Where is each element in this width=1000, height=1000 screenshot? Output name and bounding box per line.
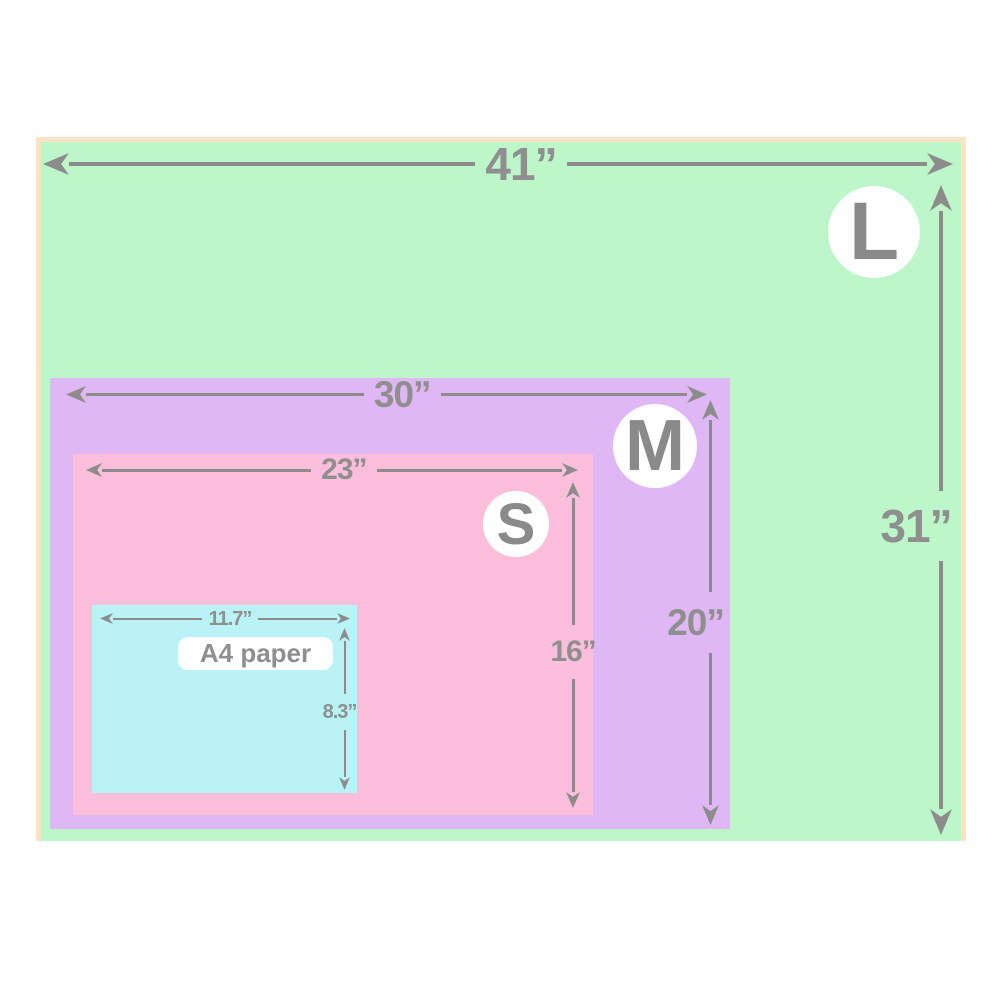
height-label-s: 16” [550, 625, 595, 679]
dimension-height-s: 16” [566, 482, 580, 808]
size-code-l: L [849, 185, 899, 279]
a4-paper-tag-label: A4 paper [200, 638, 311, 669]
dimension-line [567, 162, 927, 166]
size-m-rect: 30” 20” M 23” 16” [50, 378, 730, 829]
width-label-l: 41” [475, 141, 566, 187]
arrow-right-icon [337, 613, 350, 624]
dimension-line [441, 393, 687, 396]
a4-paper-rect: 11.7” 8.3” A4 paper [92, 605, 357, 793]
a4-paper-tag: A4 paper [178, 637, 333, 670]
dimension-width-l: 41” [43, 153, 953, 175]
arrow-left-icon [100, 613, 113, 624]
size-badge-l: L [828, 186, 920, 278]
dimension-height-a4: 8.3” [339, 628, 350, 790]
height-label-m: 20” [667, 592, 724, 653]
dimension-line [709, 420, 712, 592]
arrow-right-icon [927, 153, 953, 175]
arrow-up-icon [702, 400, 719, 420]
arrow-down-icon [339, 777, 350, 790]
dimension-line [572, 679, 575, 792]
arrow-up-icon [930, 185, 952, 211]
width-label-m: 30” [364, 376, 441, 413]
arrow-down-icon [930, 809, 952, 835]
size-code-m: M [625, 405, 685, 487]
dimension-line [113, 618, 202, 620]
width-label-a4: 11.7” [202, 609, 259, 629]
dimension-line [939, 211, 943, 491]
arrow-up-icon [566, 482, 580, 498]
size-badge-s: S [483, 491, 549, 557]
arrow-left-icon [43, 153, 69, 175]
width-label-s: 23” [311, 455, 376, 485]
dimension-line [102, 469, 311, 472]
arrow-left-icon [86, 463, 102, 477]
size-badge-m: M [613, 404, 697, 488]
dimension-line [709, 653, 712, 805]
dimension-line [377, 469, 562, 472]
height-label-l: 31” [880, 491, 951, 561]
dimension-line [572, 498, 575, 625]
dimension-line [69, 162, 475, 166]
arrow-left-icon [66, 386, 86, 403]
dimension-line [258, 618, 337, 620]
dimension-line [86, 393, 364, 396]
dimension-height-l: 31” [930, 185, 952, 835]
arrow-up-icon [339, 628, 350, 641]
arrow-down-icon [566, 792, 580, 808]
size-code-s: S [497, 491, 536, 558]
dimension-line [344, 641, 346, 694]
dimension-width-m: 30” [66, 386, 707, 403]
arrow-right-icon [562, 463, 578, 477]
dimension-width-a4: 11.7” [100, 613, 350, 624]
size-l-rect: 41” 31” L 30” 20” M [36, 137, 966, 841]
arrow-down-icon [702, 805, 719, 825]
dimension-height-m: 20” [702, 400, 719, 825]
height-label-a4: 8.3” [323, 694, 357, 730]
size-s-rect: 23” 16” S 11.7” [73, 454, 593, 815]
dimension-line [939, 561, 943, 809]
dimension-line [344, 730, 346, 777]
dimension-width-s: 23” [86, 463, 578, 477]
